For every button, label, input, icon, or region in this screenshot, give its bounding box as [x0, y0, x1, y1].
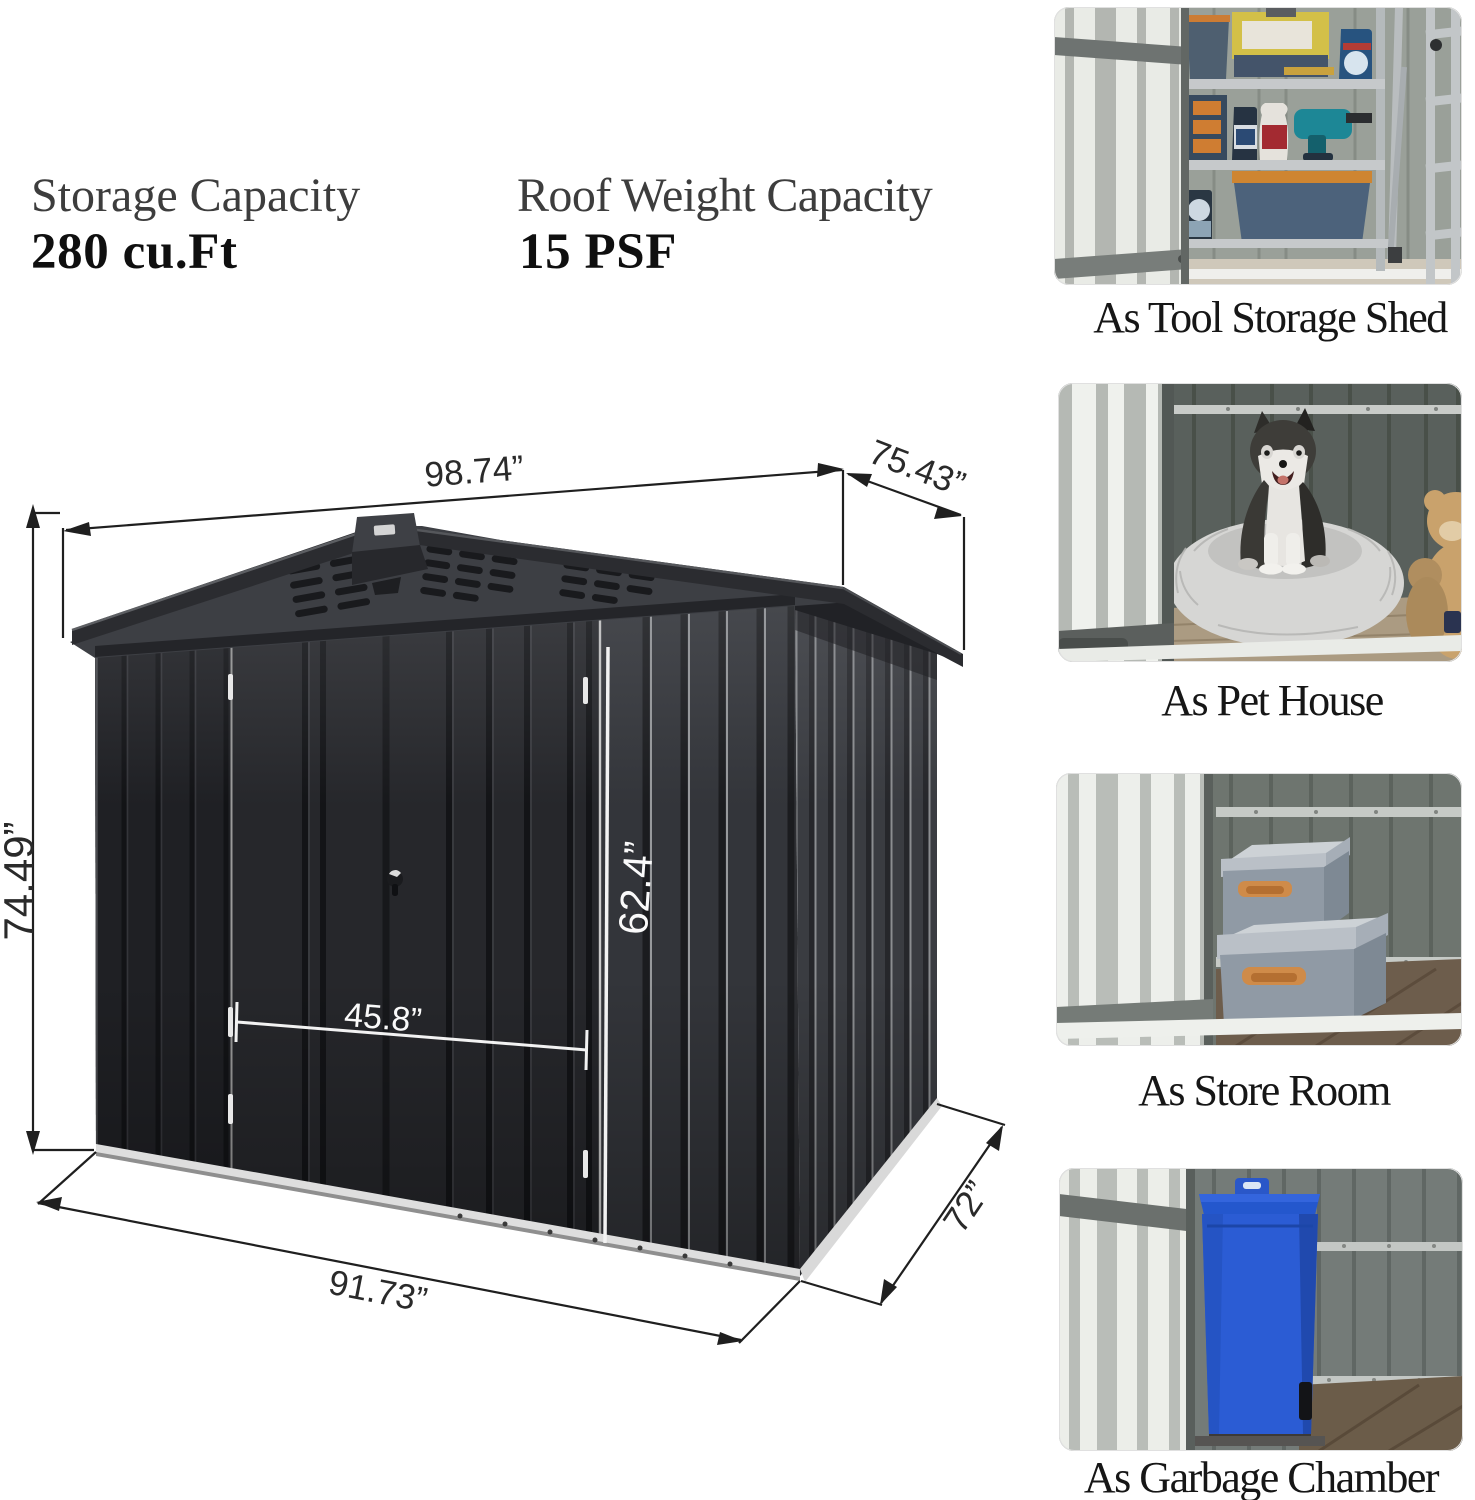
svg-text:45.8”: 45.8” [343, 996, 423, 1040]
svg-text:75.43”: 75.43” [864, 432, 971, 504]
svg-text:98.74”: 98.74” [423, 448, 525, 494]
svg-text:62.4”: 62.4” [610, 840, 662, 936]
svg-text:74.49”: 74.49” [0, 821, 42, 940]
svg-text:72”: 72” [935, 1174, 998, 1240]
svg-text:91.73”: 91.73” [325, 1263, 430, 1320]
